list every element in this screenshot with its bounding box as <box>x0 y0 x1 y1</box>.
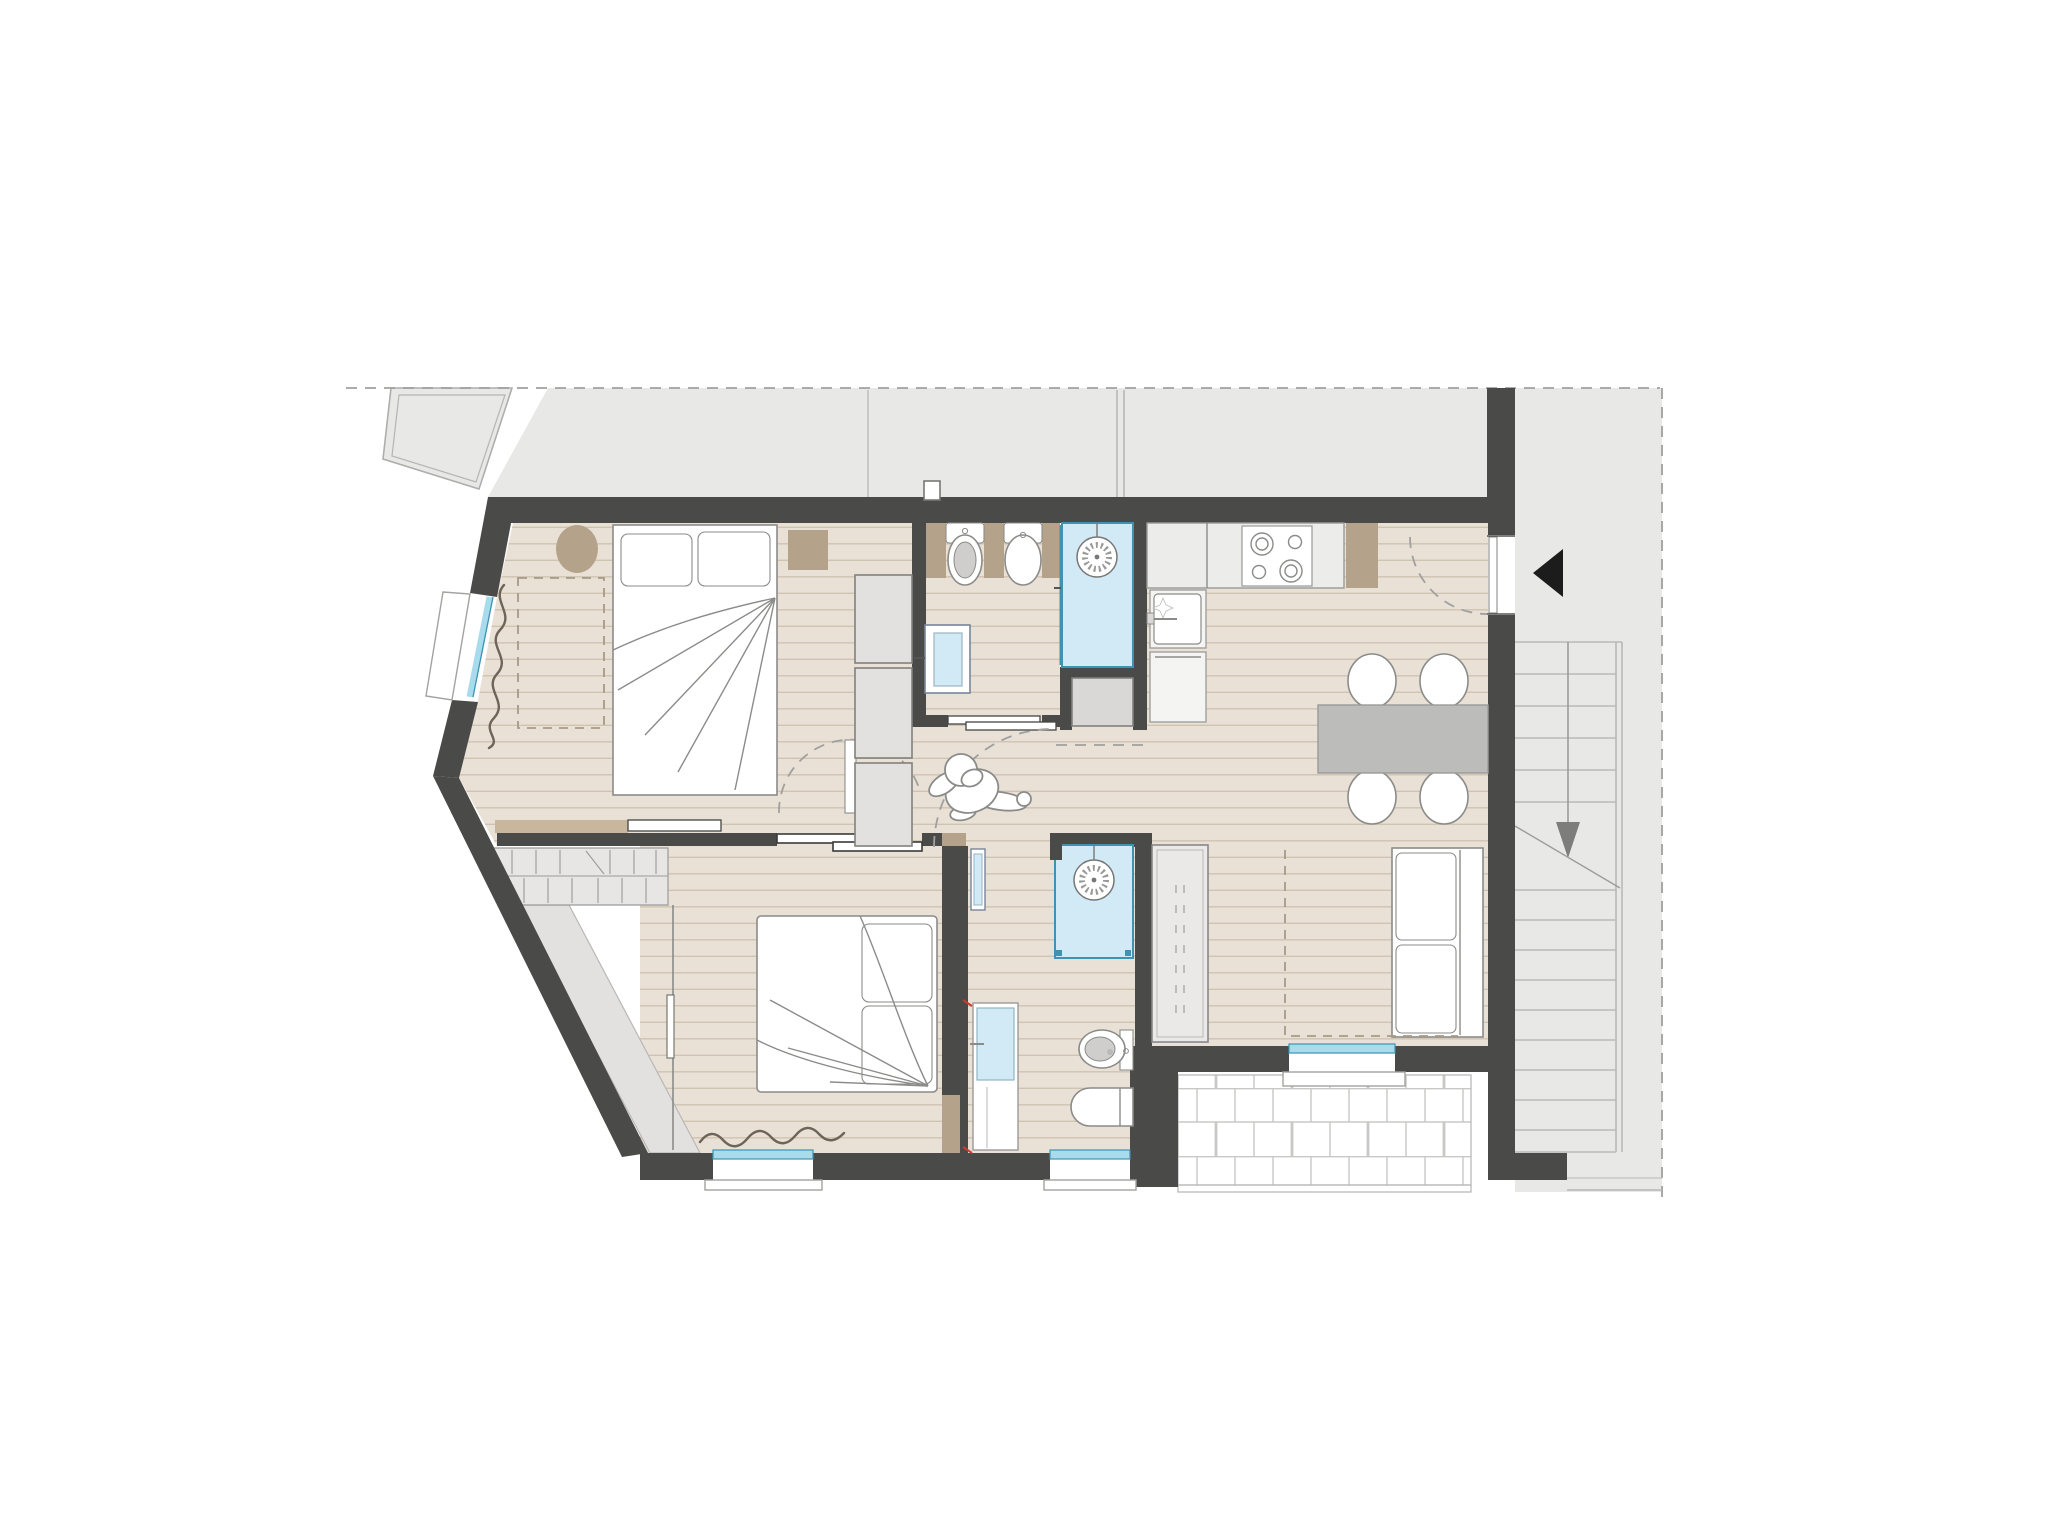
wall-cabinet-icon <box>1042 523 1060 578</box>
cooktop-icon <box>1242 526 1312 586</box>
sofa-icon <box>1392 848 1483 1037</box>
wall-hall-partition <box>497 833 777 846</box>
chair-icon <box>1348 770 1396 824</box>
wall-kitchen-west <box>1133 523 1147 730</box>
balcony-tiles <box>1178 1075 1471 1185</box>
cabinet-body <box>1152 845 1208 1042</box>
shower-icon <box>1054 523 1133 667</box>
wall-niche-left <box>1060 667 1072 730</box>
sofa-cushion <box>1396 853 1456 940</box>
tan-cabinet-icon <box>1346 523 1378 588</box>
wall-stub <box>1050 833 1062 860</box>
shower-icon <box>1055 845 1133 958</box>
toilet-icon <box>946 523 984 585</box>
wall-bottom <box>813 1153 1050 1180</box>
wall-living-west <box>1135 847 1152 1046</box>
window-bathroom-2 <box>1050 1150 1130 1159</box>
tall-unit-icon <box>1150 652 1206 722</box>
wall-bathroom-1-west <box>912 523 926 727</box>
pillow-icon <box>621 534 692 586</box>
window-sill <box>1044 1180 1136 1190</box>
wall-right <box>1488 615 1515 1153</box>
bidet-icon <box>1079 1030 1133 1070</box>
faucet-base <box>1147 613 1154 624</box>
wall-balcony-top <box>1395 1046 1488 1072</box>
bidet-icon <box>1004 523 1042 585</box>
balcony-edge <box>1178 1185 1471 1192</box>
door-jamb-tan <box>942 1095 960 1153</box>
tall-unit-sink <box>1147 590 1206 648</box>
wall-bottom <box>640 1153 713 1180</box>
wardrobe-section <box>855 668 912 758</box>
door-jamb-tan <box>942 833 966 847</box>
chair-icon <box>1420 654 1468 708</box>
neighbor-site-area <box>488 388 1487 497</box>
shower-head-center <box>1095 555 1100 560</box>
washbasin-cabinet-icon <box>970 1003 1018 1150</box>
wall-cabinet-icon <box>926 523 946 578</box>
bowl <box>1071 1088 1133 1126</box>
dining-table-icon <box>1318 705 1488 773</box>
sofa-cushion <box>1396 945 1456 1033</box>
balcony-door-glass <box>1289 1044 1395 1053</box>
bathroom-2-door-pane <box>974 854 982 905</box>
double-bed-icon <box>613 525 777 795</box>
wardrobe-section <box>855 575 912 663</box>
bedroom-1-low-wall <box>495 820 628 833</box>
pillow-icon <box>698 532 770 586</box>
drain <box>1107 1049 1113 1055</box>
chair-icon <box>1420 770 1468 824</box>
balcony-threshold-step <box>1283 1072 1405 1086</box>
wall-bedroom2-bath2 <box>942 846 968 1095</box>
glass-door-pane <box>934 633 962 686</box>
neighbor-building <box>383 388 512 489</box>
vent-stub-icon <box>924 481 940 500</box>
wardrobe-3-sections-icon <box>855 575 912 846</box>
floor-plan-drawing <box>0 0 2048 1536</box>
shower-hinge <box>1125 950 1131 956</box>
wardrobe-section <box>855 763 912 846</box>
chair-icon <box>1348 654 1396 708</box>
window-sill-west <box>426 592 470 700</box>
wall-balcony-top <box>1135 1046 1289 1072</box>
toilet-icon <box>1071 1088 1133 1126</box>
nightstand-icon <box>788 530 828 570</box>
bowl <box>1005 535 1041 585</box>
person-foot <box>1017 792 1031 806</box>
bowl-inner <box>954 542 976 578</box>
wall-party-upper <box>1487 388 1515 498</box>
window-bedroom-2 <box>713 1150 813 1159</box>
shower-head-center <box>1092 878 1097 883</box>
appliance-box-icon <box>1072 678 1133 726</box>
tall-cabinet-icon <box>1152 845 1208 1042</box>
bowl-inner <box>1085 1037 1115 1061</box>
floor-plan-page <box>0 0 2048 1536</box>
stool-icon <box>556 525 598 573</box>
stairwell-area <box>1515 388 1662 1192</box>
wall-cabinet-icon <box>984 523 1004 578</box>
wall-bottom-right-step <box>1488 1153 1567 1180</box>
window-sill <box>705 1180 822 1190</box>
wall-top <box>488 497 1515 523</box>
sideboard-icon <box>628 820 721 831</box>
wall-bedroom2-bath2 <box>960 1095 968 1153</box>
pillow-icon <box>862 924 932 1002</box>
wall-right <box>1488 523 1515 536</box>
shower-hinge <box>1056 950 1062 956</box>
wall-hall-partition <box>922 833 942 846</box>
entrance-door-leaf <box>1489 537 1497 613</box>
double-bed-icon <box>757 916 937 1092</box>
wardrobe-handle-icon <box>667 995 674 1058</box>
